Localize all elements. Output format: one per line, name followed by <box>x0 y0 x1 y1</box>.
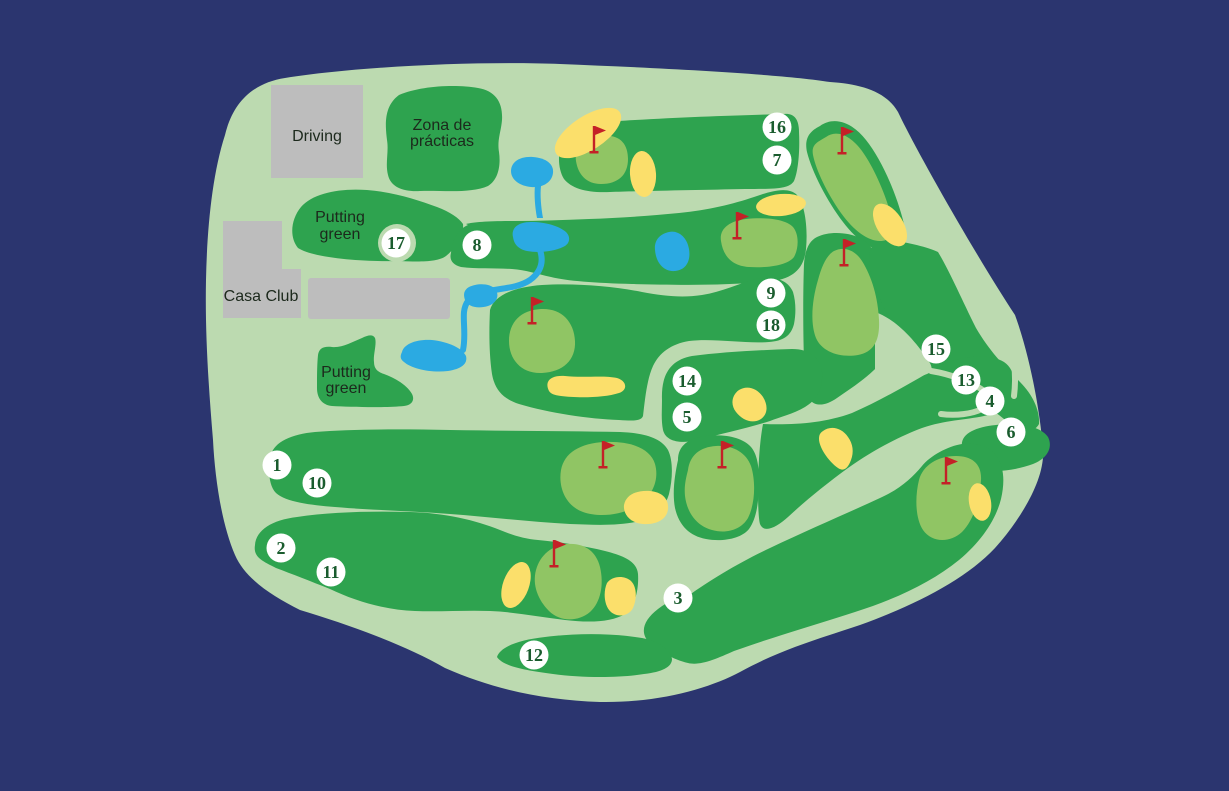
svg-text:Driving: Driving <box>292 128 342 145</box>
svg-text:5: 5 <box>683 407 692 427</box>
svg-text:10: 10 <box>308 473 326 493</box>
svg-text:7: 7 <box>773 150 782 170</box>
svg-text:prácticas: prácticas <box>410 133 474 150</box>
svg-text:Casa Club: Casa Club <box>224 288 299 305</box>
svg-text:12: 12 <box>525 645 543 665</box>
svg-text:9: 9 <box>767 283 776 303</box>
svg-text:14: 14 <box>678 371 696 391</box>
svg-text:green: green <box>326 380 367 397</box>
svg-text:18: 18 <box>762 315 780 335</box>
svg-text:1: 1 <box>273 455 282 475</box>
svg-text:green: green <box>320 226 361 243</box>
svg-text:11: 11 <box>322 562 339 582</box>
svg-text:2: 2 <box>277 538 286 558</box>
svg-text:Putting: Putting <box>321 364 371 381</box>
svg-text:Putting: Putting <box>315 209 365 226</box>
svg-text:13: 13 <box>957 370 975 390</box>
svg-text:Zona de: Zona de <box>413 117 472 134</box>
svg-text:6: 6 <box>1007 422 1016 442</box>
svg-text:17: 17 <box>387 233 405 253</box>
svg-text:3: 3 <box>674 588 683 608</box>
svg-text:15: 15 <box>927 339 945 359</box>
svg-text:16: 16 <box>768 117 786 137</box>
svg-text:4: 4 <box>986 391 995 411</box>
svg-text:8: 8 <box>473 235 482 255</box>
